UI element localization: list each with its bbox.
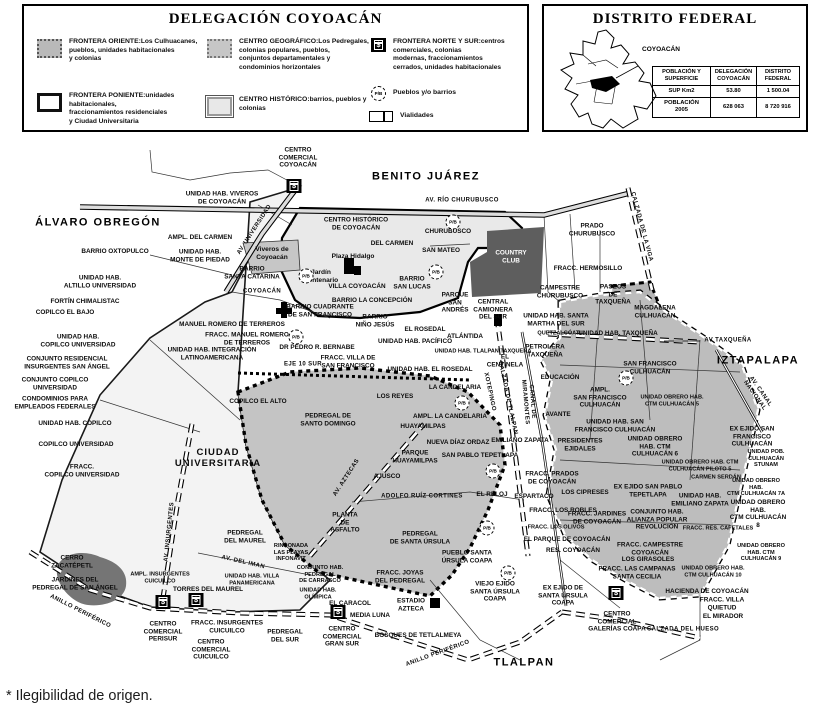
map-label: MEDIA LUNA [350,612,390,620]
map-label: EX EJIDO DE SANTA ÚRSULA COAPA [538,585,588,608]
table-cell: POBLACIÓN 2005 [653,98,711,117]
map-label: QUETZALCÓATL [537,331,582,338]
map-label: UNIDAD OBRERO HAB. CTM CULHUACÁN 6 [628,436,683,459]
map-label: UNIDAD HAB. TAXQUEÑA [578,330,657,338]
map-label: COUNTRY CLUB [495,249,526,264]
map-label: FRACC. HERMOSILLO [554,265,623,273]
legend-item-title: FRONTERA ORIENTE: [69,38,141,45]
df-coyoacan-label: COYOACÁN [642,46,680,53]
table-header: DELEGACIÓN COYOACÁN [711,67,757,86]
pueblo-barrio-icon: P/B [446,215,461,230]
map-label: PARQUE HUAYAMILPAS [392,449,437,464]
road-label: COYOACÁN [243,288,281,295]
map-label: UNIDAD HAB. OLÍMPICA [300,587,337,600]
map-label: PEDREGAL DE SANTA ÚRSULA [390,530,450,545]
map-label: FRACC. JOYAS DEL PEDREGAL [375,569,425,584]
table-header: DISTRITO FEDERAL [757,67,800,86]
pueblo-barrio-icon: P/B [455,396,470,411]
legend-item-centro-historico: CENTRO HISTÓRICO:barrios, pueblos y colo… [207,96,374,116]
map-label: EL CENTINELA [487,353,524,368]
map-label: SAN MATEO [422,247,460,255]
map-label: TLALPAN [493,657,554,670]
map-label: JARDINES DEL PEDREGAL DE SAN ÁNGEL [32,576,117,591]
map-label: ESTADIO AZTECA [397,597,425,612]
road-label: CALZADA DEL HUESO [647,626,719,633]
footnote: * Ilegibilidad de origen. [6,688,153,704]
map-label: CONDOMINIOS PARA EMPLEADOS FEDERALES [15,395,96,410]
map-label: BENITO JUÁREZ [372,171,480,184]
map-label: UNIDAD HAB. PACÍFICO [378,338,452,346]
map-label: VILLA COYOACÁN [328,283,385,291]
map-label: RES. COYOACÁN [546,547,600,555]
map-label: CERRO ZACATÉPETL [51,554,93,569]
map-label: MAGDALENA CULHUACÁN [634,304,676,319]
road-label: AV TAXQUEÑA [704,337,751,344]
pueblo-barrio-icon: P/B [289,330,304,345]
legend-item-centro-geografico: CENTRO GEOGRÁFICO:Los Pedregales, coloni… [207,38,369,73]
table-cell: 8 720 916 [757,98,800,117]
map-label: PEDREGAL DEL MAUREL [224,529,266,544]
map-label: EDUCACIÓN [541,374,580,382]
map-label: MANUEL ROMERO DE TERREROS [179,321,285,329]
legend-item-frontera-norte-sur: $ FRONTERA NORTE Y SUR:centros comercial… [371,38,527,73]
map-label: FRACC. JARDINES DE COYOACÁN [568,510,626,525]
map-label: CENTRO COMERCIAL PERISUR [144,621,183,644]
map-label: CENTRO COMERCIAL CUICUILCO [192,639,231,662]
shopping-center-icon: $ [287,179,302,193]
map-label: PUEBLO SANTA ÚRSULA COAPA [442,549,493,564]
map-label: UNIDAD HAB. INTEGRACIÓN LATINOAMERICANA [168,346,257,361]
map-label: CONJUNTO HAB. ALIANZA POPULAR REVOLUCIÓN [627,509,688,532]
map-label: TORRES DEL MAUREL [173,586,243,594]
map-label: CONJUNTO RESIDENCIAL INSURGENTES SAN ÁNG… [24,355,110,370]
map-page: ÁLVARO OBREGÓNBENITO JUÁREZIZTAPALAPATLA… [0,0,816,714]
shopping-center-icon: $ [189,593,204,607]
map-label: UNIDAD OBRERO HAB. CTM CULHUACÁN 5 [640,394,703,407]
map-label: FRACC. LOS OLIVOS [528,525,585,532]
map-label: EL PARQUE DE COYOACÁN [524,536,610,544]
map-label: CENTRO COMERCIAL GALERÍAS COAPA [588,611,645,634]
map-label: UNIDAD OBRERO HAB. CTM CULHUACÁN 9 [737,543,785,563]
map-label: FRACC. INSURGENTES CUICUILCO [191,619,263,634]
df-inset-map [548,26,666,130]
legend-item-vialidades: Vialidades [369,109,434,122]
map-label: FORTÍN CHIMALISTAC [50,298,119,306]
map-label: SAN PABLO TEPETLAPA [442,452,518,460]
map-label: CENTRO COMERCIAL COYOACÁN [279,147,318,170]
pueblo-barrio-icon: P/B [480,521,495,536]
map-label: PRESIDENTES EJIDALES [557,437,602,452]
population-table: POBLACIÓN Y SUPERFICIE DELEGACIÓN COYOAC… [652,66,800,118]
pueblo-barrio-icon: P/B [371,86,386,101]
road-segment-icon [369,111,393,122]
map-label: FRACC. RES. CAFETALES [683,526,753,533]
map-label: LOS GIRASOLES [622,556,675,564]
map-label: UNIDAD HAB. COPILCO UNIVERSIDAD [41,333,116,348]
map-label: ATLÁNTIDA [447,333,483,341]
map-label: EX EJIDO SAN FRANCISCO CULHUACÁN [730,426,775,449]
map-label: FRACC. COPILCO UNIVERSIDAD [45,463,120,478]
map-label: EMILIANO ZAPATA [491,437,549,445]
map-label: COPILCO EL ALTO [229,398,286,406]
legend-box: DELEGACIÓN COYOACÁN FRONTERA ORIENTE:Los… [22,4,529,132]
map-label: PEDREGAL DE SANTO DOMINGO [300,412,355,427]
table-cell: 53.80 [711,85,757,97]
map-label: CAMPESTRE CHURUBUSCO [537,284,583,299]
legend-item-frontera-poniente: FRONTERA PONIENTE:unidades habitacionale… [37,92,204,127]
map-label: UNIDAD HAB. EL ROSEDAL [387,366,472,374]
map-label: CIUDAD UNIVERSITARIA [175,447,261,469]
map-label: PETROLERA TAXQUEÑA [525,343,564,358]
map-label: UNIDAD OBRERO HAB. CTM CULHUACÁN 10 [681,565,744,578]
centro-geografico-swatch [207,39,232,58]
map-label: PRADO CHURUBUSCO [569,222,615,237]
map-label: AMPL. INSURGENTES CUICUILCO [130,571,189,584]
map-label: IZTAPALAPA [717,355,799,368]
map-label: UNIDAD HAB. ALTILLO UNIVERSIDAD [64,274,136,289]
legend-title: DELEGACIÓN COYOACÁN [24,11,527,28]
map-label: BOSQUES DE TETLALMEYA [375,632,462,640]
map-label: UNIDAD OBRERO HAB. CTM CULHUACÁN PILOTO … [662,459,739,472]
shopping-center-icon: $ [156,595,171,609]
shopping-center-icon: $ [609,586,624,600]
frontera-oriente-swatch [37,39,62,58]
map-label: ESPARTACO [514,493,553,501]
map-label: CONJUNTO HAB. PEDREGAL DE CARRASCO [297,565,344,585]
map-label: FRACC. CAMPESTRE COYOACÁN [617,541,683,556]
map-label: Plaza Hidalgo [332,253,375,261]
map-label: BARRIO NIÑO JESÚS [356,313,395,328]
shopping-center-icon: $ [371,38,386,52]
map-label: AMPL. DEL CARMEN [168,234,232,242]
map-label: PASEOS DE TAXQUEÑA [595,284,630,307]
map-label: RINCONADA LAS PLAYAS INFONAVIT [274,543,308,563]
legend-item-title: CENTRO HISTÓRICO: [239,96,310,103]
table-header: POBLACIÓN Y SUPERFICIE [653,67,711,86]
legend-item-title: CENTRO GEOGRÁFICO: [239,38,318,45]
map-label: ÁLVARO OBREGÓN [35,217,161,230]
map-label: UNIDAD POB. CULHUACÁN STUNAM [748,449,785,469]
map-label: PARQUE SAN ANDRÉS [442,292,469,315]
pueblo-barrio-icon: P/B [429,265,444,280]
legend-item-pueblos-barrios: P/B Pueblos y/o barrios [371,86,456,101]
map-label: Viveros de Coyoacán [255,246,288,262]
pueblo-barrio-icon: P/B [299,269,314,284]
table-cell: 628 063 [711,98,757,117]
map-label: VIEJO EJIDO SANTA ÚRSULA COAPA [470,581,520,604]
frontera-poniente-swatch [37,93,62,112]
map-label: FRACC. PRADOS DE COYOACÁN [525,470,578,485]
road-label: ADOLFO RUÍZ CORTINES [381,493,463,500]
map-label: FRACC. VILLA DE SAN FRANCISCO [321,354,376,369]
map-label: UNIDAD OBRERO HAB. CTM CULHUACÁN 7A [726,478,786,498]
map-label: UNIDAD HAB. COPILCO [38,420,111,428]
map-label: DR PEDRO R. BERNABE [279,344,354,352]
map-label: BARRIO SANTA CATARINA [224,265,280,280]
map-label: BARRIO CUADRANTE DE SAN FRANCISCO [286,303,353,318]
legend-item-frontera-oriente: FRONTERA ORIENTE:Los Culhuacanes, pueblo… [37,38,197,64]
map-label: UNIDAD HAB. SANTA MARTHA DEL SUR [523,312,589,327]
map-label: LOS CIPRESES [561,489,608,497]
map-label: UNIDAD HAB. VILLA PANAMERICANA [225,573,280,586]
map-label: AMPL. LA CANDELARIA [413,413,487,421]
map-label: BARRIO SAN LUCAS [393,275,430,290]
map-label: AMPL. SAN FRANCISCO CULHUACÁN [573,387,626,410]
shopping-center-icon: $ [331,605,346,619]
pueblo-barrio-icon: P/B [501,566,516,581]
map-label: CENTRAL CAMIONERA DEL SUR [473,299,512,322]
legend-item-title: FRONTERA NORTE Y SUR: [393,38,481,45]
map-label: PEDREGAL DEL SUR [267,628,303,643]
map-label: FRACC. LAS CAMPANAS SANTA CECILIA [599,565,676,580]
map-label: CENTRO HISTÓRICO DE COYOACÁN [324,216,388,231]
legend-item-title: Pueblos y/o barrios [393,89,456,96]
centro-historico-swatch [207,97,232,116]
map-label: CONJUNTO COPILCO UNIVERSIDAD [22,376,89,391]
legend-item-title: Vialidades [400,112,434,119]
road-label: EJE 10 SUR [284,361,322,368]
map-label: HACIENDA DE COYOACÁN [665,588,748,596]
table-cell: SUP Km2 [653,85,711,97]
map-label: HUAYAMILPAS [400,423,445,431]
map-label: UNIDAD HAB. EMILIANO ZAPATA [671,492,729,507]
map-label: FRACC. VILLA QUIETUD [700,596,744,611]
map-label: COPILCO EL BAJO [36,309,94,317]
legend-item-title: FRONTERA PONIENTE: [69,92,145,99]
map-label: CHURUBUSCO [425,228,471,236]
map-label: FRACC. MANUEL ROMERO DE TERREROS [205,331,289,346]
map-label: CENTRO COMERCIAL GRAN SUR [323,626,362,649]
map-label: DEL CARMEN [371,240,414,248]
map-label: EL RELOJ [476,491,507,499]
pueblo-barrio-icon: P/B [486,464,501,479]
map-label: AJUSCO [374,473,401,481]
map-label: EL MIRADOR [703,613,743,621]
map-label: COPILCO UNIVERSIDAD [39,441,114,449]
map-label: BARRIO OXTOPULCO [81,248,148,256]
distrito-federal-box: DISTRITO FEDERAL COYOACÁN POBLACIÓN Y SU… [542,4,808,132]
map-label: AVANTE [545,411,570,419]
map-label: PLANTA DE ASFALTO [330,512,359,535]
map-label: LA CANDELARIA [429,384,481,392]
map-label: LOS REYES [377,393,414,401]
map-label: UNIDAD HAB. SAN FRANCISCO CULHUACÁN [575,418,656,433]
map-label: UNIDAD HAB. VIVEROS DE COYOACÁN [186,190,258,205]
map-label: UNIDAD OBRERO HAB. CTM CULHUACÁN 8 [729,499,787,529]
table-cell: 1 500.04 [757,85,800,97]
map-label: UNIDAD HAB. MONTE DE PIEDAD [170,248,230,263]
road-label: AV. RÍO CHURUBUSCO [425,197,499,204]
map-label: NUEVA DÍAZ ORDAZ [427,439,490,447]
map-label: EL ROSEDAL [404,326,445,334]
pueblo-barrio-icon: P/B [619,371,634,386]
